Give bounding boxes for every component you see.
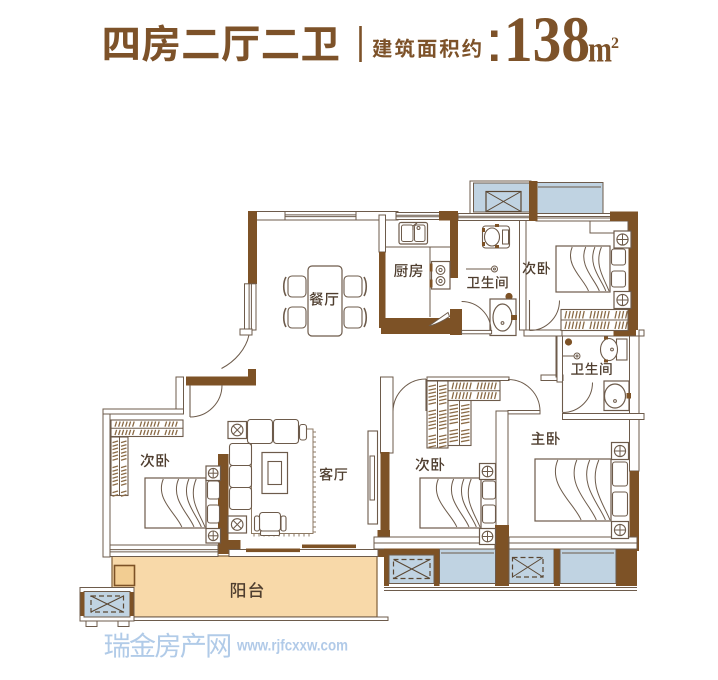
- svg-text:m: m: [588, 30, 612, 71]
- svg-text:138: 138: [504, 4, 590, 76]
- svg-text:2: 2: [611, 35, 619, 52]
- svg-text:www.rjfcxxw.com: www.rjfcxxw.com: [236, 638, 348, 655]
